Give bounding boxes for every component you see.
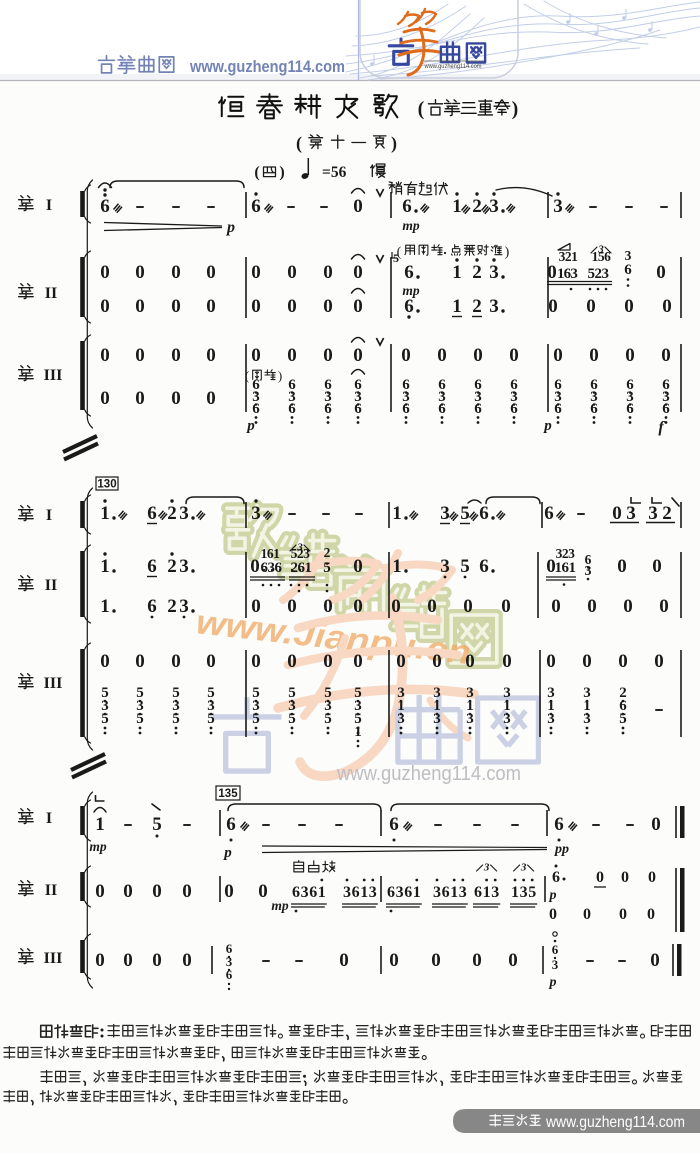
svg-text:0: 0 xyxy=(152,950,162,971)
svg-text:321: 321 xyxy=(559,249,579,264)
svg-text:0: 0 xyxy=(401,345,411,366)
svg-text:1: 1 xyxy=(452,196,462,217)
svg-text:6: 6 xyxy=(252,401,260,417)
svg-text:0: 0 xyxy=(502,651,512,672)
svg-text:3: 3 xyxy=(520,862,527,874)
svg-text:0: 0 xyxy=(135,651,145,672)
svg-text:(: ( xyxy=(254,164,259,181)
svg-text:2: 2 xyxy=(662,503,672,524)
svg-text:3: 3 xyxy=(585,564,592,579)
svg-text:261: 261 xyxy=(291,560,312,576)
svg-text:0: 0 xyxy=(323,296,333,317)
svg-text:5: 5 xyxy=(136,711,144,727)
svg-text:0: 0 xyxy=(251,596,261,617)
svg-text:0: 0 xyxy=(353,596,363,617)
svg-text:0: 0 xyxy=(100,296,110,317)
svg-text:0: 0 xyxy=(135,388,145,409)
svg-text:5: 5 xyxy=(528,884,536,901)
svg-text:(: ( xyxy=(418,98,425,120)
svg-text:6: 6 xyxy=(404,884,412,901)
svg-text:): ) xyxy=(391,133,397,154)
svg-text:6: 6 xyxy=(544,503,554,524)
svg-text:I: I xyxy=(46,197,52,214)
svg-text:0: 0 xyxy=(323,651,333,672)
svg-text:6: 6 xyxy=(552,869,560,886)
svg-text:0: 0 xyxy=(206,345,216,366)
svg-text:0: 0 xyxy=(353,345,363,366)
svg-text:0: 0 xyxy=(547,262,557,283)
svg-text:(: ( xyxy=(397,245,402,260)
svg-text:3: 3 xyxy=(489,196,499,217)
svg-text:0: 0 xyxy=(100,262,110,283)
svg-text:5: 5 xyxy=(460,556,470,577)
svg-text:6: 6 xyxy=(288,401,296,417)
svg-text:5: 5 xyxy=(172,711,180,727)
svg-text:www.guzheng114.com: www.guzheng114.com xyxy=(424,63,482,70)
svg-text:5: 5 xyxy=(207,711,215,727)
svg-text:0: 0 xyxy=(353,556,363,577)
svg-text:1: 1 xyxy=(100,556,110,577)
svg-text:(: ( xyxy=(296,133,302,154)
svg-text:2: 2 xyxy=(472,296,482,317)
svg-text:III: III xyxy=(44,675,63,692)
svg-text:163: 163 xyxy=(557,266,577,282)
svg-text:6: 6 xyxy=(402,196,412,217)
svg-text:0: 0 xyxy=(389,950,399,971)
svg-text:6: 6 xyxy=(147,556,157,577)
svg-text:5: 5 xyxy=(619,711,627,727)
svg-text:1: 1 xyxy=(450,884,458,901)
svg-text:0: 0 xyxy=(654,651,664,672)
svg-text:5: 5 xyxy=(152,814,162,835)
svg-text:3: 3 xyxy=(301,884,309,901)
svg-text:3: 3 xyxy=(552,957,559,972)
svg-text:0: 0 xyxy=(661,345,671,366)
svg-text:6: 6 xyxy=(442,884,450,901)
svg-text:0: 0 xyxy=(251,651,261,672)
svg-text:1: 1 xyxy=(413,884,421,901)
svg-text:0: 0 xyxy=(624,296,634,317)
svg-text:1: 1 xyxy=(483,884,491,901)
svg-text:0: 0 xyxy=(171,345,181,366)
svg-text:0: 0 xyxy=(551,596,561,617)
svg-text:www.guzheng114.com: www.guzheng114.com xyxy=(189,57,345,76)
svg-text:2: 2 xyxy=(472,196,482,217)
svg-text:6: 6 xyxy=(474,884,482,901)
svg-text:III: III xyxy=(44,367,63,384)
svg-text:6: 6 xyxy=(309,884,317,901)
svg-text:0: 0 xyxy=(95,950,105,971)
svg-text:3: 3 xyxy=(547,711,555,727)
svg-text:0: 0 xyxy=(391,596,401,617)
svg-text:II: II xyxy=(45,285,57,302)
svg-text:0: 0 xyxy=(501,596,511,617)
svg-text:6: 6 xyxy=(324,401,332,417)
svg-text:0: 0 xyxy=(135,296,145,317)
svg-text:0: 0 xyxy=(396,651,406,672)
svg-text:mp: mp xyxy=(271,898,289,913)
svg-text:0: 0 xyxy=(287,296,297,317)
svg-text:p: p xyxy=(542,418,552,434)
svg-text:0: 0 xyxy=(353,296,363,317)
svg-text:0: 0 xyxy=(583,906,591,923)
svg-text:3: 3 xyxy=(520,884,528,901)
svg-text:0: 0 xyxy=(287,345,297,366)
svg-text:0: 0 xyxy=(152,881,162,902)
svg-text:0: 0 xyxy=(206,651,216,672)
svg-text:161: 161 xyxy=(261,546,281,561)
svg-text:www.guzheng114.com: www.guzheng114.com xyxy=(336,763,521,785)
svg-text:(: ( xyxy=(245,368,249,383)
svg-text:3: 3 xyxy=(440,556,450,577)
svg-text:0: 0 xyxy=(618,651,628,672)
svg-text:6: 6 xyxy=(354,401,362,417)
svg-text:0: 0 xyxy=(656,262,666,283)
svg-text:156: 156 xyxy=(592,249,612,264)
svg-text:www.guzheng114.com: www.guzheng114.com xyxy=(545,1114,685,1131)
svg-text:5: 5 xyxy=(101,711,109,727)
svg-text:6: 6 xyxy=(590,401,598,417)
svg-text:0: 0 xyxy=(182,881,192,902)
svg-text:3: 3 xyxy=(491,884,499,901)
svg-text:6: 6 xyxy=(226,967,233,982)
svg-text:0: 0 xyxy=(353,196,363,217)
svg-text:6: 6 xyxy=(626,401,634,417)
svg-text:0: 0 xyxy=(647,906,655,923)
svg-text:3: 3 xyxy=(466,711,474,727)
svg-text:2: 2 xyxy=(324,545,331,560)
svg-text:0: 0 xyxy=(465,651,475,672)
svg-text:0: 0 xyxy=(648,869,656,886)
svg-text:3: 3 xyxy=(343,884,351,901)
svg-text:III: III xyxy=(44,950,63,967)
svg-text:130: 130 xyxy=(97,479,116,491)
svg-text:0: 0 xyxy=(123,950,133,971)
svg-text:3: 3 xyxy=(397,711,405,727)
svg-text:0: 0 xyxy=(135,345,145,366)
svg-text:p: p xyxy=(225,219,235,236)
svg-text:3: 3 xyxy=(553,196,563,217)
svg-text:): ) xyxy=(512,98,519,120)
svg-text:0: 0 xyxy=(100,651,110,672)
svg-text:6: 6 xyxy=(402,401,410,417)
svg-text:1: 1 xyxy=(354,724,362,740)
svg-text:0: 0 xyxy=(171,651,181,672)
svg-text:1: 1 xyxy=(392,503,402,524)
svg-text:0: 0 xyxy=(508,950,518,971)
svg-text:0: 0 xyxy=(251,262,261,283)
svg-text:1: 1 xyxy=(100,596,110,617)
svg-text:p: p xyxy=(549,975,557,990)
svg-text:6: 6 xyxy=(438,401,446,417)
svg-text:0: 0 xyxy=(100,345,110,366)
svg-text:5: 5 xyxy=(288,711,296,727)
svg-text:6: 6 xyxy=(226,814,236,835)
svg-text:323: 323 xyxy=(556,546,576,561)
svg-text:0: 0 xyxy=(546,651,556,672)
svg-text:1: 1 xyxy=(511,884,519,901)
svg-text:0: 0 xyxy=(652,556,662,577)
svg-text:3: 3 xyxy=(179,503,189,524)
svg-text:6: 6 xyxy=(662,401,670,417)
svg-text:3: 3 xyxy=(489,296,499,317)
svg-text:0: 0 xyxy=(472,950,482,971)
svg-text:0: 0 xyxy=(662,296,672,317)
svg-text:6: 6 xyxy=(352,884,360,901)
svg-text:0: 0 xyxy=(619,906,627,923)
svg-text:3: 3 xyxy=(433,884,441,901)
svg-text:6: 6 xyxy=(404,296,414,317)
svg-text:0: 0 xyxy=(100,388,110,409)
svg-text:2: 2 xyxy=(472,262,482,283)
svg-text:636: 636 xyxy=(261,560,283,576)
svg-text:p: p xyxy=(222,845,232,861)
svg-text:3: 3 xyxy=(489,262,499,283)
svg-text:p: p xyxy=(549,888,557,903)
svg-text:0: 0 xyxy=(509,345,519,366)
svg-text:0: 0 xyxy=(251,345,261,366)
svg-text:6: 6 xyxy=(474,401,482,417)
svg-text:mp: mp xyxy=(89,839,107,854)
svg-text:6: 6 xyxy=(510,401,518,417)
svg-text:0: 0 xyxy=(323,262,333,283)
svg-text:3: 3 xyxy=(179,556,189,577)
svg-text:0: 0 xyxy=(596,869,604,886)
svg-text:0: 0 xyxy=(135,262,145,283)
svg-text:0: 0 xyxy=(287,651,297,672)
svg-text:6: 6 xyxy=(387,884,395,901)
svg-text:0: 0 xyxy=(323,596,333,617)
svg-text:3: 3 xyxy=(583,711,591,727)
svg-text:0: 0 xyxy=(353,651,363,672)
svg-text:0: 0 xyxy=(258,881,268,902)
svg-text:0: 0 xyxy=(353,262,363,283)
svg-text:0: 0 xyxy=(621,869,629,886)
svg-text:0: 0 xyxy=(582,651,592,672)
svg-text:0: 0 xyxy=(623,596,633,617)
svg-text:3: 3 xyxy=(625,248,632,263)
svg-text:1: 1 xyxy=(452,296,462,317)
svg-text:6: 6 xyxy=(292,884,300,901)
svg-text:1: 1 xyxy=(95,814,105,835)
svg-text:6: 6 xyxy=(554,401,562,417)
svg-text:0: 0 xyxy=(463,596,473,617)
svg-text:135: 135 xyxy=(218,788,238,800)
svg-text:3: 3 xyxy=(251,503,261,524)
svg-text:0: 0 xyxy=(586,296,596,317)
svg-text:0: 0 xyxy=(339,950,349,971)
svg-text:0: 0 xyxy=(251,296,261,317)
svg-text:6: 6 xyxy=(479,503,489,524)
svg-text:6: 6 xyxy=(100,196,110,217)
svg-text:6: 6 xyxy=(251,196,261,217)
svg-text:5: 5 xyxy=(324,711,332,727)
svg-text:0: 0 xyxy=(224,881,234,902)
svg-text:3: 3 xyxy=(483,862,490,874)
svg-text:0: 0 xyxy=(473,345,483,366)
svg-text:6: 6 xyxy=(147,596,157,617)
svg-text:3: 3 xyxy=(396,884,404,901)
svg-text:3: 3 xyxy=(503,711,511,727)
svg-text:3: 3 xyxy=(459,884,467,901)
svg-text:): ) xyxy=(279,164,284,181)
svg-text:1: 1 xyxy=(100,503,110,524)
svg-text:6: 6 xyxy=(554,814,564,835)
svg-text:I: I xyxy=(46,507,52,524)
svg-text:0: 0 xyxy=(587,596,597,617)
svg-text:0: 0 xyxy=(553,345,563,366)
svg-text:3: 3 xyxy=(626,503,636,524)
svg-text:1: 1 xyxy=(452,262,462,283)
svg-text:0: 0 xyxy=(650,950,660,971)
svg-text:161: 161 xyxy=(555,560,576,576)
svg-text:): ) xyxy=(505,245,510,260)
svg-text:6: 6 xyxy=(147,503,157,524)
svg-text:0: 0 xyxy=(171,296,181,317)
svg-text:): ) xyxy=(278,368,282,383)
svg-text:0: 0 xyxy=(171,388,181,409)
svg-text:pp: pp xyxy=(554,842,569,857)
svg-text:3: 3 xyxy=(369,884,377,901)
svg-text:523: 523 xyxy=(588,266,609,282)
svg-text:0: 0 xyxy=(431,950,441,971)
svg-text:II: II xyxy=(45,882,57,899)
svg-text:1: 1 xyxy=(318,884,326,901)
svg-text:0: 0 xyxy=(171,262,181,283)
svg-text:II: II xyxy=(45,577,57,594)
svg-text:p: p xyxy=(245,418,255,434)
svg-text:2: 2 xyxy=(167,596,177,617)
svg-text:f: f xyxy=(658,419,665,436)
svg-text:6: 6 xyxy=(552,942,559,957)
svg-text:0: 0 xyxy=(250,556,260,577)
svg-text:1: 1 xyxy=(360,884,368,901)
svg-text:0: 0 xyxy=(432,651,442,672)
svg-text:6: 6 xyxy=(479,556,489,577)
svg-text:0: 0 xyxy=(206,262,216,283)
svg-text:0: 0 xyxy=(589,345,599,366)
svg-text:0: 0 xyxy=(549,906,557,923)
svg-text:6: 6 xyxy=(389,814,399,835)
svg-text:6: 6 xyxy=(404,262,414,283)
svg-text:0: 0 xyxy=(617,556,627,577)
svg-text:0: 0 xyxy=(287,596,297,617)
svg-text:mp: mp xyxy=(402,218,420,233)
svg-text:6: 6 xyxy=(624,262,632,278)
svg-text:0: 0 xyxy=(206,388,216,409)
svg-text:0: 0 xyxy=(437,345,447,366)
svg-text:=56: =56 xyxy=(322,164,347,181)
svg-text:I: I xyxy=(46,810,52,827)
svg-text:0: 0 xyxy=(182,950,192,971)
svg-text:0: 0 xyxy=(206,296,216,317)
svg-text:2: 2 xyxy=(167,556,177,577)
svg-text:3: 3 xyxy=(648,503,658,524)
svg-text:3: 3 xyxy=(179,596,189,617)
svg-text:0: 0 xyxy=(323,345,333,366)
svg-text:0: 0 xyxy=(659,596,669,617)
svg-text:3: 3 xyxy=(440,503,450,524)
svg-text:0: 0 xyxy=(95,881,105,902)
svg-text:0: 0 xyxy=(548,296,558,317)
svg-text:5: 5 xyxy=(252,711,260,727)
svg-text:0: 0 xyxy=(427,596,437,617)
svg-text:0: 0 xyxy=(625,345,635,366)
svg-text:3: 3 xyxy=(433,711,441,727)
svg-text:2: 2 xyxy=(167,503,177,524)
svg-text:5: 5 xyxy=(460,503,470,524)
svg-text:0: 0 xyxy=(612,503,622,524)
svg-text:0: 0 xyxy=(287,262,297,283)
svg-text:523: 523 xyxy=(291,546,311,561)
svg-text:1: 1 xyxy=(392,556,402,577)
svg-text:0: 0 xyxy=(123,881,133,902)
svg-text:0: 0 xyxy=(651,814,661,835)
